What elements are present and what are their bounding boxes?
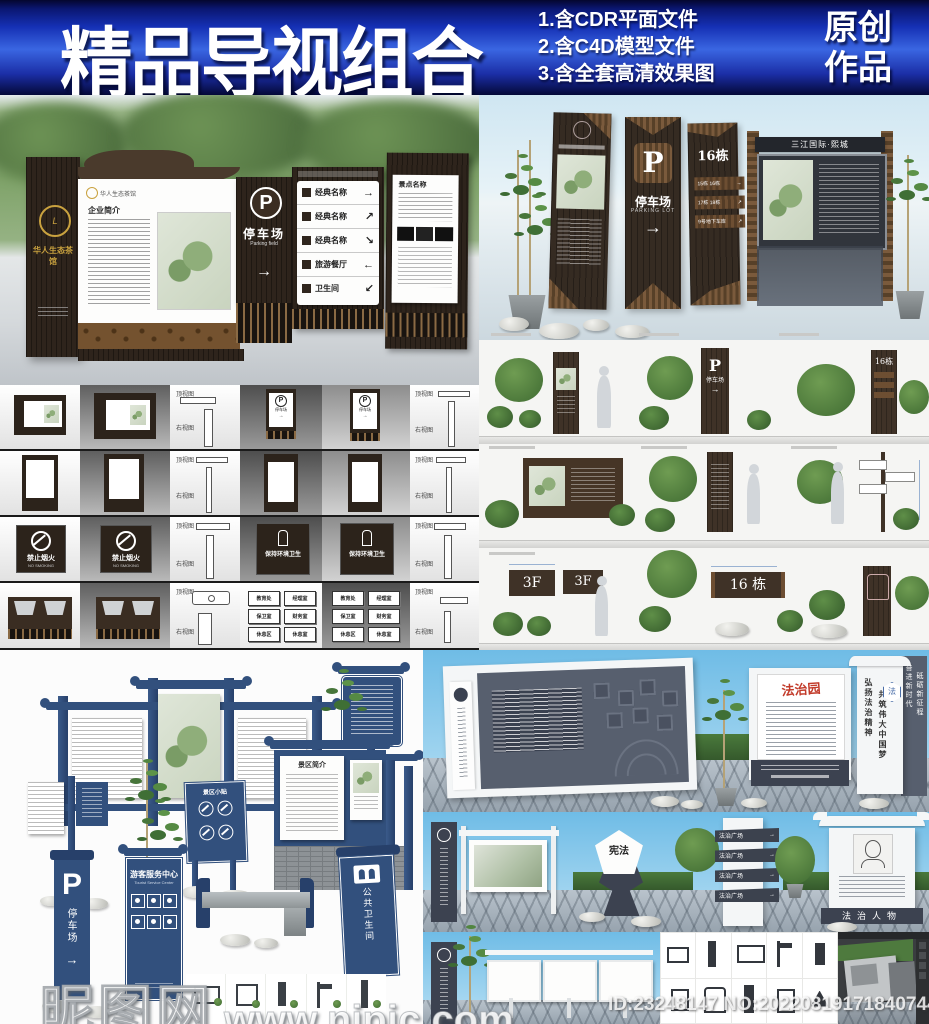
shrub (519, 410, 541, 428)
directory-lines (351, 685, 393, 735)
arrow-right-icon: → (54, 952, 90, 967)
shelf-divider (479, 436, 929, 444)
service-icons (127, 893, 181, 935)
side-panel (350, 760, 382, 820)
spots-board: 景点名称 (392, 175, 459, 304)
board-face: 华人生态茶馆 企业简介 (78, 179, 240, 323)
mini-base (266, 431, 296, 439)
fingerpost-blade (859, 460, 887, 470)
directory-panel: 经典名称→ 经典名称↗ 经典名称↘ 旅游餐厅← 卫生间↙ (292, 167, 384, 329)
mini-page (352, 462, 378, 502)
no-litter-icon (199, 825, 215, 841)
wood-wedge (690, 281, 740, 306)
vertical-pylon (431, 822, 457, 922)
shrub (639, 406, 669, 430)
door-plate: 财务室 (368, 609, 400, 624)
feature-item: 2.含C4D模型文件 (538, 34, 715, 61)
post (386, 760, 395, 846)
char-tile (606, 712, 623, 729)
mini-map (556, 368, 576, 390)
eave-top (849, 656, 911, 666)
white-gantry (459, 826, 559, 916)
door-plate: 经理室 (284, 591, 316, 606)
c4d-icon (919, 962, 926, 969)
stone (539, 323, 579, 339)
grid-cell: 顶视图 右视图 (170, 385, 240, 451)
parking-letter-frame: P (634, 143, 672, 183)
parking-pylon-small: P 停车场 → (701, 348, 729, 434)
shrub (809, 590, 845, 620)
mini-parking-cn: 停车场 (701, 375, 729, 384)
feature-item: 3.含全套高清效果图 (538, 61, 715, 88)
bench (196, 868, 316, 958)
pylon-text (557, 218, 602, 265)
grid-cell: 顶视图 右视图 (170, 517, 240, 583)
garden-title: 法治园 (757, 676, 844, 701)
mini-face: P 停车场 → (353, 393, 377, 429)
side-view-label: 右视图 (415, 491, 433, 500)
mini-text (557, 396, 575, 416)
spots-text2 (398, 247, 452, 287)
side-text (354, 796, 378, 812)
mini-text-pylon (348, 454, 382, 512)
mini-face: P 停车场 → (269, 393, 293, 427)
notice-gantry: 三江国际·熙城 (747, 129, 893, 305)
bamboo-leaves (527, 225, 543, 235)
caption-bar (489, 552, 535, 555)
hygiene-cn: 保持环境卫生 (257, 549, 309, 558)
stone (827, 922, 857, 932)
intro-text (286, 774, 338, 834)
side-view-drawing (198, 613, 212, 645)
shrub (527, 616, 551, 636)
poster-page: 精品导视组合 1.含CDR平面文件 2.含C4D模型文件 3.含全套高清效果图 … (0, 0, 929, 1024)
toilet-face: 公共卫生间 (339, 855, 399, 978)
person-icon (278, 530, 288, 546)
spirit-pylon: 弘扬法治精神 共筑伟大中国梦 法 (857, 664, 903, 794)
directory-brandbar (298, 171, 378, 177)
watermark: 昵图网 www.nipic.com (40, 966, 514, 1024)
back-slogan: 奋进新时代 (903, 664, 913, 784)
branch-base (236, 303, 292, 343)
tree (649, 456, 697, 502)
mini-plaque (874, 382, 894, 388)
bin-base (8, 629, 72, 639)
side-view-drawing (448, 401, 455, 447)
grid-cell: 保持环境卫生 (240, 517, 322, 583)
floor-plate: 3F (509, 570, 555, 596)
garden-text (766, 702, 836, 756)
no-pets-icon (217, 800, 233, 816)
mini-arch-plaque (867, 574, 889, 600)
bamboo-leaves (150, 830, 166, 840)
stone (811, 624, 847, 638)
panel-lines (82, 788, 102, 818)
banner: 精品导视组合 1.含CDR平面文件 2.含C4D模型文件 3.含全套高清效果图 … (0, 0, 929, 95)
directory-row: 经典名称↘ (297, 229, 379, 253)
law-garden-board: 法治园 (749, 668, 851, 780)
building-pylon-small: 16栋 (871, 350, 897, 434)
door-plate: 教育处 (332, 591, 364, 606)
parking-pylon: P 停车场 PARKING LOT → (625, 117, 681, 309)
parking-en: PARKING LOT (625, 208, 681, 214)
mini-directory (104, 454, 144, 512)
mini-parking-pylon: P 停车场 → (266, 389, 296, 439)
grid-cell: 顶视图 右视图 (410, 451, 479, 517)
char-tile (618, 690, 635, 707)
service-en: Tourist Service Center (127, 880, 181, 885)
arrow-icon: → (736, 180, 741, 186)
wood-wedge (625, 283, 681, 309)
mini-list (26, 460, 54, 498)
tips-face: 景区小贴 (185, 781, 248, 863)
row-icon (302, 284, 311, 293)
building-plaque: 17栋 18栋↗ (695, 195, 745, 209)
toilet-cn: 公共卫生间 (361, 887, 377, 958)
side-view-drawing (206, 535, 214, 579)
c4d-toolbar (838, 932, 929, 939)
wood-wedge (548, 278, 579, 309)
pylon-logo-icon (573, 121, 591, 139)
tree (647, 356, 693, 400)
constitution-sculpture: 宪法 (573, 826, 663, 926)
hygiene-sign: 保持环境卫生 (340, 523, 394, 575)
caption-bar (491, 333, 531, 336)
grid-cell (80, 385, 170, 451)
building-plaque: 15栋 16栋→ (694, 176, 744, 190)
hygiene-sign: 保持环境卫生 (256, 523, 310, 575)
person-silhouette (747, 474, 760, 524)
grid-cell: P 停车场 → (322, 385, 410, 451)
no-smoking-icon (116, 531, 136, 551)
arch-beam (819, 816, 925, 826)
brand-name: 华人生态茶馆 (32, 245, 74, 267)
c4d-icon (919, 972, 926, 979)
directory-row: 经典名称↗ (297, 205, 379, 229)
caption-bar (779, 333, 819, 336)
image-id-line: ID:23248147 NO:20220819171840744105 (608, 994, 929, 1016)
bench-leg (284, 908, 306, 936)
grid-cell: 保持环境卫生 (322, 517, 410, 583)
top-view-drawing (440, 597, 468, 604)
wood-wedge (625, 117, 681, 135)
thumb-cell (661, 933, 695, 978)
door-plate: 保卫室 (248, 609, 280, 624)
grid-cell (0, 385, 80, 451)
side-view-label: 右视图 (176, 627, 194, 636)
no-smoking-en: NO SMOKING (17, 563, 65, 568)
watermark-url: www.nipic.com (224, 998, 514, 1024)
top-view-drawing (196, 523, 230, 530)
char-tile (639, 679, 656, 696)
arrow-right-icon: → (625, 217, 681, 238)
siteplan-image (158, 213, 230, 309)
arrow-icon: → (769, 872, 775, 878)
map-pylon (548, 112, 611, 309)
top-view-label: 顶视图 (415, 587, 433, 596)
fingerpost-blade (859, 484, 887, 494)
door-plate: 财务室 (284, 609, 316, 624)
row-icon (302, 260, 311, 269)
parking-letter: P (54, 868, 90, 902)
door-plate: 休息室 (368, 627, 400, 642)
directory-row: 经典名称→ (297, 181, 379, 205)
caption-bar (641, 446, 687, 449)
side-view-label: 右视图 (176, 491, 194, 500)
sculpture-stone: 宪法 (595, 830, 643, 874)
tips-title: 景区小贴 (186, 786, 244, 797)
side-view-drawing (204, 409, 213, 447)
bamboo-plant (723, 690, 725, 790)
parking-cn: 停车场 (66, 908, 78, 952)
base-icons (761, 765, 839, 773)
top-view-label: 顶视图 (415, 455, 433, 464)
grid-cell (0, 583, 80, 650)
top-view-drawing (438, 391, 470, 397)
bamboo-plant (907, 155, 909, 295)
top-view-label: 顶视图 (415, 521, 433, 530)
pylon-render: P 停车场 PARKING LOT → 16栋 15栋 16栋→ 17栋 18栋… (479, 95, 929, 340)
grid-cell (0, 451, 80, 517)
garden-page: 法治园 (757, 674, 845, 760)
watermark-site: 昵图网 (40, 966, 214, 1024)
tree (899, 380, 929, 414)
bin-opening (132, 601, 154, 615)
pylon-vtext (440, 848, 448, 908)
thumb-sketch (737, 945, 765, 963)
lintel (136, 680, 246, 689)
arrow-icon: ↗ (738, 199, 742, 205)
shrub (893, 508, 919, 530)
base-plinth (78, 349, 244, 361)
mini-plaque (874, 372, 894, 378)
shrub (777, 610, 803, 632)
person-silhouette (831, 472, 844, 524)
mini-text-pylon (264, 454, 298, 512)
profile-title: 企业简介 (88, 205, 120, 216)
arch-curl (813, 812, 827, 820)
directory-row: 卫生间↙ (297, 277, 379, 300)
arrow-icon: ← (363, 259, 374, 271)
shrub (493, 612, 523, 636)
thumb-sketch (815, 943, 825, 965)
side-view-drawing (444, 611, 451, 643)
stone (220, 934, 250, 946)
blue-panel (76, 782, 108, 826)
info-icon (131, 894, 145, 908)
mini-page (268, 462, 294, 502)
c4d-icon (919, 952, 926, 959)
no-photo-icon (218, 824, 234, 840)
parking-en: Parking field (236, 241, 292, 247)
mini-parking-pylon: P 停车场 → (350, 389, 380, 441)
rail-beam (485, 950, 653, 955)
tree (895, 576, 929, 610)
gantry-post (461, 826, 466, 914)
stone (715, 622, 749, 636)
arrow-icon: ↙ (365, 282, 374, 295)
feature-item: 1.含CDR平面文件 (538, 7, 715, 34)
prohibition-icons (186, 798, 246, 848)
side-view-label: 右视图 (415, 425, 433, 434)
bamboo-plant (517, 150, 519, 300)
fingerpost-blade (885, 472, 915, 482)
mini-text (711, 464, 729, 512)
spots-panel: 景点名称 (385, 153, 469, 350)
shrub (645, 508, 675, 532)
brand-logo-icon: L (39, 205, 71, 237)
back-slogan: 砥砺新征程 (914, 672, 924, 792)
lintel (124, 848, 182, 856)
no-smoking-cn: 禁止烟火 (17, 553, 65, 563)
figures-arch-board: 法治人物 (819, 816, 925, 926)
trash-bins (8, 597, 72, 639)
service-cn: 游客服务中心 (127, 869, 181, 880)
spots-text (398, 193, 452, 221)
gantry-board (757, 154, 887, 250)
hygiene-cn: 保持环境卫生 (341, 549, 393, 558)
bamboo-leaves (715, 710, 731, 720)
arrow-icon: → (769, 892, 775, 898)
no-smoking-icon (31, 531, 51, 551)
arch-text (839, 876, 905, 900)
mini-base (350, 433, 380, 441)
dimension-line (711, 566, 777, 567)
gantry-post (551, 826, 556, 914)
arrow-right-icon: → (236, 263, 292, 281)
top-view-drawing (180, 397, 216, 404)
mini-list (109, 459, 139, 499)
board-logo-icon (86, 187, 98, 199)
pylon-slogan: 共筑伟大中国梦 (877, 690, 888, 790)
top-view-drawing (434, 523, 466, 530)
arrow-icon: ↗ (738, 218, 742, 224)
text-pylon-small (707, 452, 733, 532)
bamboo-leaves (334, 700, 350, 710)
grid-cell: 禁止烟火 NO SMOKING (0, 517, 80, 583)
intro-panel: 景区简介 (280, 756, 344, 840)
no-smoking-cn: 禁止烟火 (101, 553, 151, 563)
drain-circle (208, 595, 215, 602)
directory-board: 经典名称→ 经典名称↗ 经典名称↘ 旅游餐厅← 卫生间↙ (297, 181, 379, 305)
brand-pylon: L 华人生态茶馆 (26, 157, 80, 357)
garden-base (751, 760, 849, 786)
side-view-label: 右视图 (176, 423, 194, 432)
bamboo-leaves (513, 185, 529, 195)
side-view-label: 右视图 (415, 627, 433, 636)
wall-pillar (449, 681, 475, 790)
door-plate: 保卫室 (332, 609, 364, 624)
parking-letter: P (250, 187, 282, 219)
help-icon (163, 894, 177, 908)
arch-curl (917, 812, 929, 820)
directory-row: 旅游餐厅← (297, 253, 379, 277)
mini-intro-sign (14, 395, 66, 435)
person-silhouette (595, 586, 608, 636)
arch-face (829, 828, 915, 908)
intro-title: 景区简介 (280, 760, 344, 770)
constitution-text: 宪法 (595, 842, 643, 857)
spots-title: 景点名称 (399, 180, 427, 190)
bamboo-leaves (138, 790, 154, 800)
map-pylon-small (553, 352, 579, 434)
top-view-label: 顶视图 (176, 521, 194, 530)
mini-parking-letter: P (359, 395, 371, 407)
thumb-cell (767, 933, 801, 978)
top-view-drawing (436, 457, 466, 463)
bin-opening (102, 601, 124, 615)
shelf-divider (479, 540, 929, 548)
portrait-shoulders (861, 859, 885, 868)
mini-board (106, 400, 150, 430)
pillar-text (457, 708, 467, 778)
side-view-label: 右视图 (415, 559, 433, 568)
side-view-drawing (206, 467, 212, 513)
arrow-icon: → (769, 832, 775, 838)
wood-signage-render: L 华人生态茶馆 华人生态茶馆 企业简介 P 停车场 Parking field… (0, 95, 479, 385)
parking-cn: 停车场 (236, 225, 292, 242)
cap (50, 850, 94, 860)
c4d-icon (919, 942, 926, 949)
gantry-map-image (763, 160, 813, 240)
door-plate: 经理室 (368, 591, 400, 606)
gantry-beam (459, 830, 559, 836)
thumb-cell (696, 933, 730, 978)
stone (681, 800, 703, 809)
gantry-lower (757, 246, 883, 306)
branch-base (385, 313, 467, 338)
door-plate: 教育处 (248, 591, 280, 606)
shrub (639, 606, 671, 632)
building-plaque: 9号地下车库↗ (695, 214, 745, 228)
stone (631, 916, 661, 927)
bamboo-plant (529, 140, 531, 300)
photo-strip (397, 227, 453, 241)
caption-bar (489, 446, 535, 449)
thumb-blade (780, 943, 792, 948)
wall-slate (477, 666, 689, 789)
gantry-header: 三江国际·熙城 (755, 137, 885, 152)
original-badge: 原创 作品 (796, 8, 920, 88)
side-image (353, 763, 379, 793)
pylon-map-image (556, 154, 605, 209)
mini-parking-letter: P (701, 356, 729, 375)
stone (859, 798, 889, 809)
grid-cell (322, 451, 410, 517)
dimension-line (919, 460, 920, 520)
mini-map (130, 405, 146, 425)
grid-cell: 顶视图 右视图 (170, 583, 240, 650)
grid-cell (80, 583, 170, 650)
mini-arrow-icon: → (269, 413, 293, 419)
portrait-face (865, 840, 881, 858)
stone (499, 317, 529, 331)
grid-cell: 顶视图 右视图 (170, 451, 240, 517)
tree (647, 550, 697, 598)
bin-opening (44, 601, 66, 615)
intro-board: 华人生态茶馆 企业简介 (78, 173, 240, 323)
banner-feature-list: 1.含CDR平面文件 2.含C4D模型文件 3.含全套高清效果图 (538, 7, 715, 88)
bin-base (96, 629, 160, 639)
caption-bar (639, 333, 679, 336)
side-view-drawing (446, 467, 452, 513)
side-view-label: 右视图 (176, 559, 194, 568)
lintel (270, 740, 390, 749)
gantry-text (819, 164, 879, 236)
top-view-label: 顶视图 (415, 389, 433, 398)
thumb-sketch (667, 947, 689, 963)
planter-pot (893, 291, 927, 319)
